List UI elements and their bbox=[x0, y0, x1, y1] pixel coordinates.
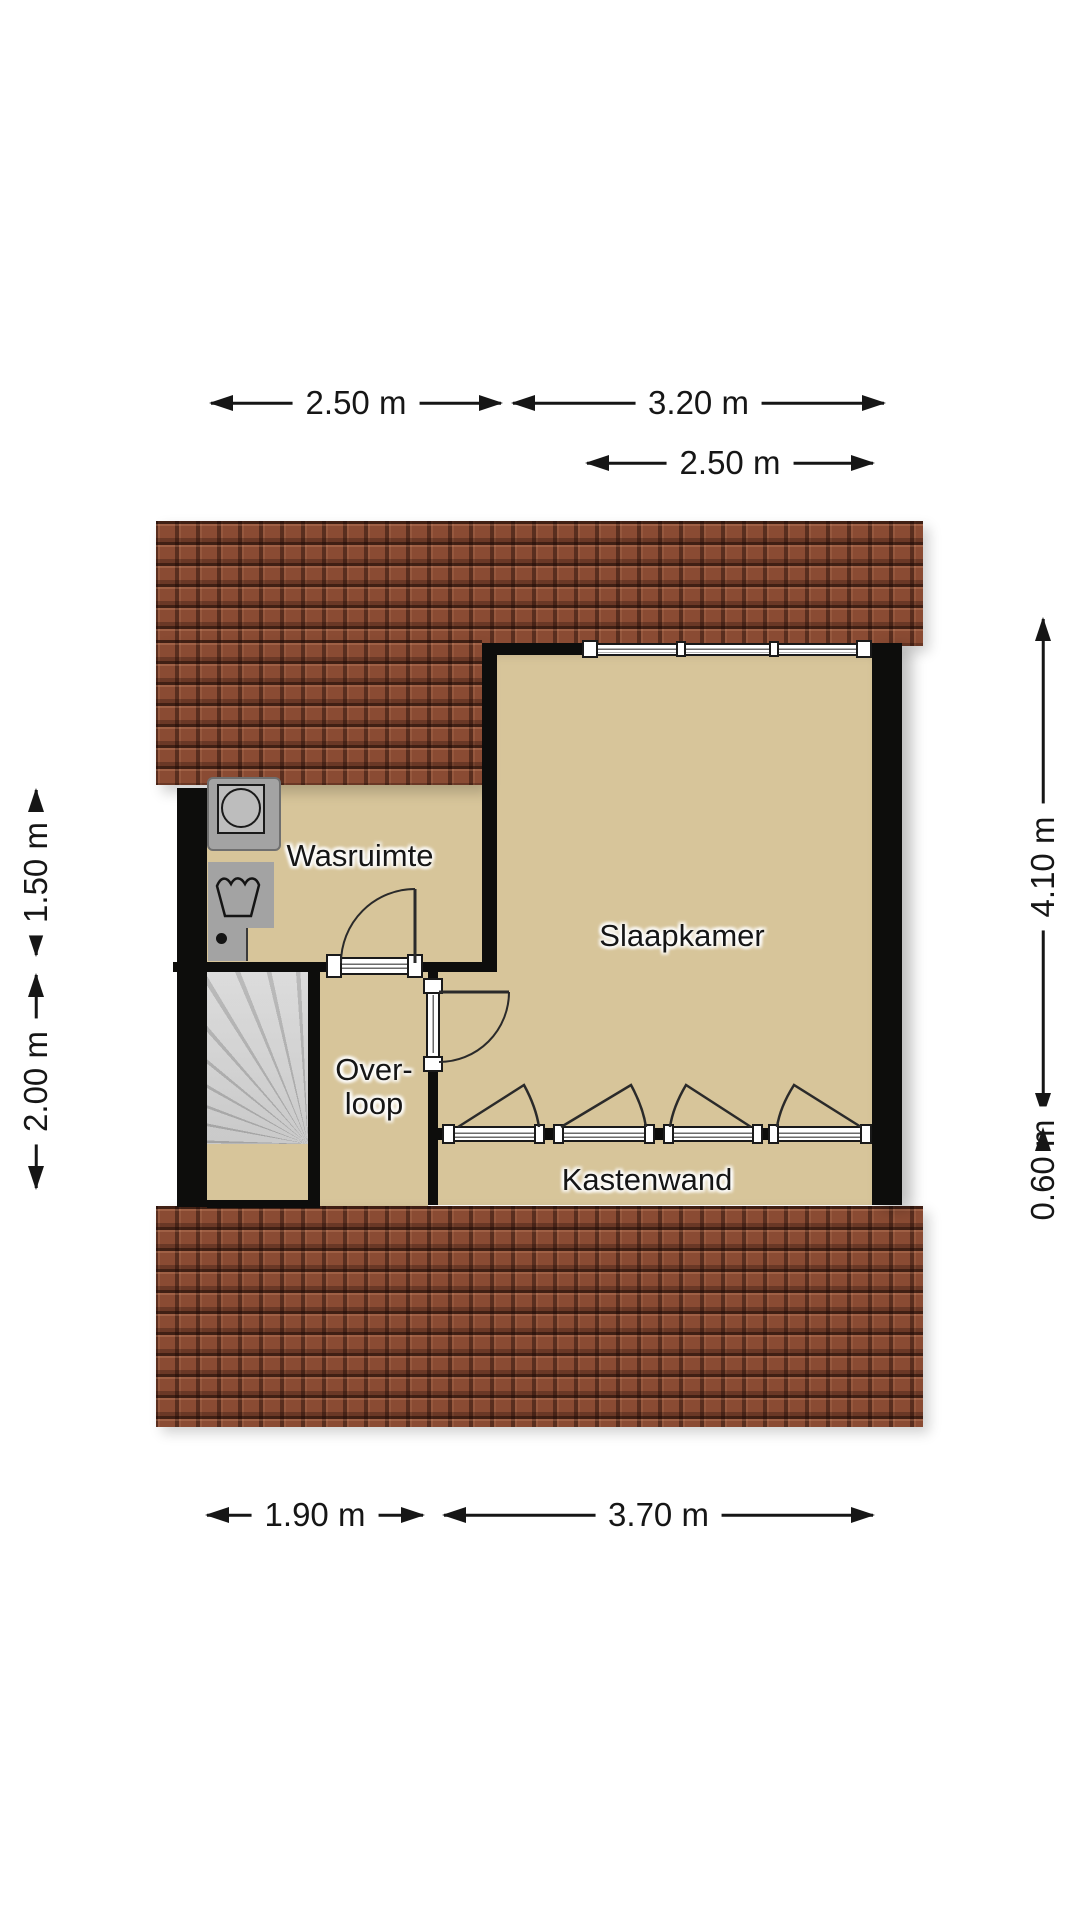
dimension-bottom-right: 3.70 m bbox=[442, 1497, 875, 1533]
room-label-overloop: Over- loop bbox=[335, 1053, 413, 1121]
door-sill-cap bbox=[407, 954, 423, 978]
room-label-overloop-line1: Over- bbox=[335, 1052, 413, 1087]
wall-stairwell-south bbox=[207, 1200, 320, 1208]
slaapkamer-floor-extension bbox=[438, 972, 497, 1205]
sink-icon bbox=[208, 862, 274, 928]
drain-dot bbox=[216, 933, 227, 944]
room-label-kastenwand: Kastenwand bbox=[562, 1163, 733, 1197]
window-mullion bbox=[769, 641, 779, 657]
wall-right-outer bbox=[872, 643, 902, 1205]
window-mullion bbox=[676, 641, 686, 657]
closet-rail-cap bbox=[860, 1124, 872, 1144]
dimension-top-left: 2.50 m bbox=[209, 385, 503, 421]
stairs-icon bbox=[207, 972, 308, 1144]
wall-left-outer bbox=[177, 788, 207, 1207]
dimension-bottom-left: 1.90 m bbox=[205, 1497, 425, 1533]
roof-top-left-section bbox=[156, 640, 482, 785]
window-cap-right bbox=[856, 640, 872, 658]
window-cap-left bbox=[582, 640, 598, 658]
room-label-wasruimte: Wasruimte bbox=[287, 839, 434, 873]
stair-landing-floor bbox=[207, 1144, 308, 1203]
closet-rail-segment bbox=[663, 1126, 763, 1142]
closet-rail-segment bbox=[442, 1126, 545, 1142]
closet-rail-segment bbox=[553, 1126, 655, 1142]
door-sill-slaapkamer bbox=[426, 984, 440, 1064]
dimension-right-upper: 4.10 m bbox=[1025, 617, 1061, 1117]
door-sill-cap bbox=[423, 1056, 443, 1072]
dimension-top-window: 2.50 m bbox=[585, 445, 875, 481]
closet-rail-segment bbox=[768, 1126, 872, 1142]
floorplan-canvas: Wasruimte Slaapkamer Over- loop Kastenwa… bbox=[0, 0, 1080, 1920]
room-label-slaapkamer: Slaapkamer bbox=[599, 919, 764, 953]
closet-rail-cap bbox=[644, 1124, 655, 1144]
window bbox=[586, 643, 872, 656]
dimension-top-right: 3.20 m bbox=[511, 385, 886, 421]
closet-rail-cap bbox=[663, 1124, 674, 1144]
closet-rail-cap bbox=[534, 1124, 545, 1144]
closet-rail-cap bbox=[752, 1124, 763, 1144]
room-label-overloop-line2: loop bbox=[345, 1086, 404, 1121]
roof-top bbox=[156, 521, 923, 646]
closet-rail-cap bbox=[768, 1124, 779, 1144]
wall-wasruimte-slaapkamer bbox=[482, 643, 497, 972]
counter-with-drain bbox=[208, 928, 248, 961]
roof-bottom bbox=[156, 1206, 923, 1427]
washing-machine-icon bbox=[207, 777, 281, 851]
door-sill-cap bbox=[326, 954, 342, 978]
dimension-left-lower: 2.00 m bbox=[18, 973, 54, 1190]
wall-stairwell-east bbox=[308, 972, 320, 1207]
door-sill-cap bbox=[423, 978, 443, 994]
closet-rail-cap bbox=[442, 1124, 455, 1144]
closet-rail-cap bbox=[553, 1124, 564, 1144]
dimension-right-lower: 0.60 m bbox=[1025, 1127, 1061, 1213]
dimension-left-upper: 1.50 m bbox=[18, 788, 54, 957]
